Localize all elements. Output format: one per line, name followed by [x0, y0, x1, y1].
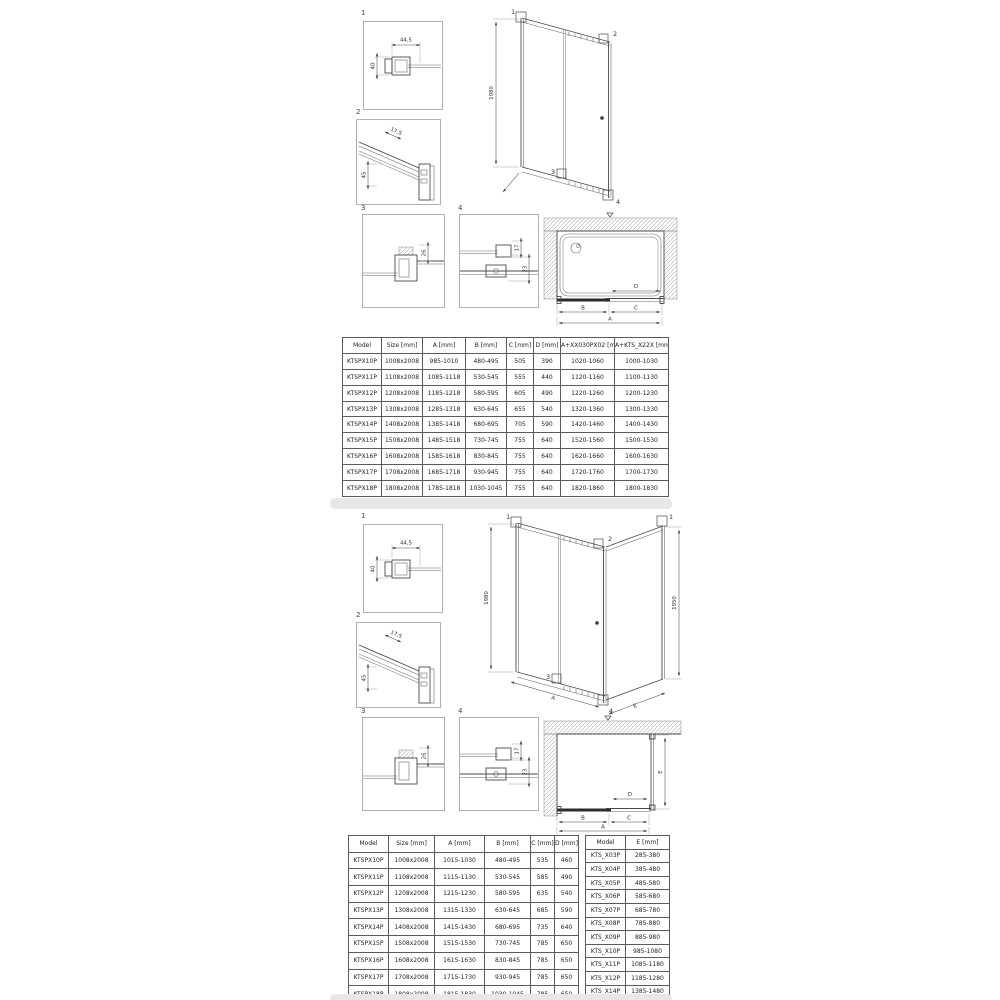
- column-header: D [mm]: [534, 338, 561, 354]
- table-cell: 1215-1230: [435, 886, 485, 903]
- callout-2: 2: [608, 535, 612, 543]
- table-cell: 705: [507, 417, 534, 433]
- table-cell: 1600-1630: [615, 449, 669, 465]
- table-cell: 730-745: [485, 936, 531, 953]
- table-row: KTSPX14P1408x20081385-1418680-6957055901…: [343, 417, 669, 433]
- column-header: C [mm]: [531, 836, 555, 853]
- table-cell: 1185-1218: [423, 385, 466, 401]
- table-cell: 640: [534, 481, 561, 497]
- table-cell: 1100-1130: [615, 369, 669, 385]
- table-cell: 535: [531, 852, 555, 869]
- dimension-C: C: [611, 304, 662, 315]
- table-cell: 985-1010: [423, 353, 466, 369]
- dimension-45: 45: [362, 664, 378, 692]
- column-header: A [mm]: [423, 338, 466, 354]
- table-cell: 1008x2008: [382, 353, 423, 369]
- svg-text:23: 23: [523, 769, 529, 776]
- table-cell: 655: [507, 401, 534, 417]
- rail-teeth: [569, 32, 599, 193]
- dimension-A: A: [511, 682, 599, 707]
- table-cell: 640: [534, 433, 561, 449]
- dimension-D: D: [613, 792, 647, 799]
- callout-4: 4: [616, 198, 620, 206]
- table-cell: 985-1080: [626, 944, 670, 958]
- dimension-45: 45: [362, 161, 378, 189]
- table-cell: 605: [507, 385, 534, 401]
- detail-4-number: 4: [458, 205, 462, 212]
- table-cell: KTS_X10P: [586, 944, 626, 958]
- table-cell: 1020-1060: [561, 353, 615, 369]
- detail-3-number: 3: [361, 205, 365, 212]
- table-cell: KTSPX15P: [349, 936, 389, 953]
- dimension-17: 17: [512, 741, 524, 761]
- table-cell: 1015-1030: [435, 852, 485, 869]
- table-cell: 1585-1618: [423, 449, 466, 465]
- door-with-panel-spec-table: ModelSize [mm]A [mm]B [mm]C [mm]D [mm]KT…: [348, 835, 579, 1000]
- detail-2-number: 2: [356, 109, 360, 116]
- callout-1: 1: [511, 8, 515, 16]
- dimension-23: 23: [508, 757, 532, 787]
- table-header-row: ModelSize [mm]A [mm]B [mm]C [mm]D [mm]A+…: [343, 338, 669, 354]
- table-row: KTSPX17P1708x20081685-1718930-9457556401…: [343, 465, 669, 481]
- table-cell: 640: [534, 449, 561, 465]
- dimension-1980: 1980: [484, 524, 514, 672]
- table-cell: 885-980: [626, 931, 670, 945]
- detail-1-wall-profile: 44,5 40: [363, 21, 443, 110]
- table-cell: 1520-1560: [561, 433, 615, 449]
- table-cell: 930-945: [466, 465, 507, 481]
- table-cell: 590: [534, 417, 561, 433]
- dimension-D: D: [612, 284, 660, 291]
- column-header: C [mm]: [507, 338, 534, 354]
- table-cell: KTSPX13P: [343, 401, 382, 417]
- table-cell: 1108x2008: [389, 869, 435, 886]
- svg-text:B: B: [581, 306, 585, 312]
- section-cut-marker: [607, 213, 613, 217]
- dimension-B: B: [557, 304, 609, 315]
- table-cell: 1030-1045: [466, 481, 507, 497]
- table-cell: 830-845: [485, 952, 531, 969]
- table-cell: 1315-1330: [435, 902, 485, 919]
- table-cell: 460: [555, 852, 579, 869]
- column-header: D [mm]: [555, 836, 579, 853]
- table-cell: 590: [555, 902, 579, 919]
- detail-4-guide-b: 17 23: [459, 717, 539, 811]
- table-cell: 530-545: [466, 369, 507, 385]
- table-row: KTSPX11P1108x20081085-1118530-5455554401…: [343, 369, 669, 385]
- table-cell: 555: [507, 369, 534, 385]
- side-panel-perspective: [606, 526, 665, 700]
- table-cell: 480-495: [485, 852, 531, 869]
- column-header: Model: [343, 338, 382, 354]
- table-cell: 1200-1230: [615, 385, 669, 401]
- detail-3-bottom-rail-b: 26: [362, 717, 445, 811]
- table-cell: 680-695: [485, 919, 531, 936]
- table-cell: KTSPX10P: [343, 353, 382, 369]
- table-cell: 1508x2008: [382, 433, 423, 449]
- table-row: KTSPX12P1208x20081215-1230580-595635540: [349, 886, 579, 903]
- svg-text:23: 23: [523, 266, 529, 273]
- table-cell: 755: [507, 449, 534, 465]
- table-cell: 785: [531, 952, 555, 969]
- table-cell: 1708x2008: [382, 465, 423, 481]
- table-cell: 1700-1730: [615, 465, 669, 481]
- svg-text:D: D: [628, 792, 632, 798]
- table-row: KTSPX10P1008x2008985-1010480-49550539010…: [343, 353, 669, 369]
- table-cell: 1320-1360: [561, 401, 615, 417]
- table-row: KTSPX15P1508x20081485-1518730-7457556401…: [343, 433, 669, 449]
- table-cell: 1420-1460: [561, 417, 615, 433]
- plan-view-recess: D B C A: [543, 212, 678, 330]
- table-cell: 1515-1530: [435, 936, 485, 953]
- opening-direction-arrow: [503, 173, 519, 192]
- table-cell: 490: [534, 385, 561, 401]
- walls: [544, 721, 681, 816]
- walls: [544, 218, 677, 299]
- table-cell: KTS_X08P: [586, 917, 626, 931]
- table-cell: 735: [531, 919, 555, 936]
- svg-text:40: 40: [371, 565, 377, 572]
- table-cell: 755: [507, 481, 534, 497]
- door-handle: [595, 621, 599, 625]
- svg-text:1950: 1950: [672, 596, 678, 610]
- table-cell: 440: [534, 369, 561, 385]
- table-cell: 540: [555, 886, 579, 903]
- dimension-A: A: [557, 825, 649, 835]
- table-cell: 490: [555, 869, 579, 886]
- table-cell: 1808x2008: [382, 481, 423, 497]
- table-cell: 730-745: [466, 433, 507, 449]
- callout-3: 3: [551, 168, 555, 176]
- detail-2-number-b: 2: [356, 612, 360, 619]
- table-cell: 1485-1518: [423, 433, 466, 449]
- table-cell: 1085-1180: [626, 958, 670, 972]
- table-row: KTSPX16P1608x20081585-1618830-8457556401…: [343, 449, 669, 465]
- svg-text:E: E: [633, 703, 639, 710]
- table-cell: 285-380: [626, 849, 670, 863]
- table-row: KTSPX16P1608x20081615-1630830-845785650: [349, 952, 579, 969]
- column-header: B [mm]: [466, 338, 507, 354]
- table-cell: 1715-1730: [435, 969, 485, 986]
- table-row: KTS_X03P285-380: [586, 849, 670, 863]
- dimension-40: 40: [371, 53, 391, 79]
- table-cell: 1085-1118: [423, 369, 466, 385]
- table-row: KTS_X12P1185-1280: [586, 971, 670, 985]
- table-cell: KTSPX16P: [343, 449, 382, 465]
- svg-text:1980: 1980: [489, 86, 495, 100]
- table-cell: 1408x2008: [389, 919, 435, 936]
- dimension-E: E: [656, 735, 669, 809]
- table-row: KTSPX11P1108x20081115-1130530-545585490: [349, 869, 579, 886]
- table-cell: KTSPX12P: [343, 385, 382, 401]
- table-cell: 650: [555, 936, 579, 953]
- dimension-17-5: 17,5: [385, 630, 403, 642]
- table-cell: 1308x2008: [382, 401, 423, 417]
- table-cell: 630-645: [466, 401, 507, 417]
- dimension-23: 23: [508, 254, 532, 284]
- callout-1b: 1: [669, 513, 673, 521]
- callout-2: 2: [613, 30, 617, 38]
- svg-text:45: 45: [362, 675, 368, 682]
- table-row: KTSPX18P1808x20081785-18181030-104575564…: [343, 481, 669, 497]
- door-plan-line: [557, 807, 651, 814]
- table-cell: KTSPX12P: [349, 886, 389, 903]
- table-cell: 1108x2008: [382, 369, 423, 385]
- table-cell: 1720-1760: [561, 465, 615, 481]
- table-cell: 685-780: [626, 903, 670, 917]
- table-row: KTSPX14P1408x20081415-1430680-695735640: [349, 919, 579, 936]
- table-cell: 1000-1030: [615, 353, 669, 369]
- table-row: KTS_X05P485-580: [586, 876, 670, 890]
- table-cell: 785: [531, 969, 555, 986]
- dimension-17: 17: [512, 238, 524, 258]
- table-cell: 1208x2008: [382, 385, 423, 401]
- detail-markers: [516, 12, 613, 200]
- table-cell: 1408x2008: [382, 417, 423, 433]
- table-cell: 385-480: [626, 863, 670, 877]
- table-cell: KTSPX18P: [343, 481, 382, 497]
- dimension-44-5: 44,5: [392, 541, 420, 567]
- table-cell: KTS_X11P: [586, 958, 626, 972]
- table-cell: 650: [555, 952, 579, 969]
- door-elevation-drawing: 1 2 3 4 1980: [483, 6, 648, 212]
- table-cell: KTS_X07P: [586, 903, 626, 917]
- detail-3-bottom-rail: 26: [362, 214, 445, 308]
- table-cell: 1208x2008: [389, 886, 435, 903]
- table-cell: 1220-1260: [561, 385, 615, 401]
- dimension-40: 40: [371, 556, 391, 582]
- svg-text:B: B: [581, 816, 585, 822]
- top-rail-drawing: [359, 645, 434, 703]
- table-cell: 580-595: [485, 886, 531, 903]
- table-cell: KTSPX10P: [349, 852, 389, 869]
- table-row: KTSPX13P1308x20081285-1318630-6456555401…: [343, 401, 669, 417]
- dimension-B: B: [557, 814, 609, 825]
- svg-text:D: D: [634, 284, 638, 290]
- table-cell: 585-680: [626, 890, 670, 904]
- table-cell: KTS_X12P: [586, 971, 626, 985]
- svg-text:44,5: 44,5: [400, 541, 412, 547]
- table-cell: 930-945: [485, 969, 531, 986]
- table-row: KTS_X06P585-680: [586, 890, 670, 904]
- column-header: B [mm]: [485, 836, 531, 853]
- table-cell: KTSPX11P: [349, 869, 389, 886]
- table-cell: KTSPX14P: [343, 417, 382, 433]
- svg-text:17,5: 17,5: [389, 630, 402, 640]
- table-row: KTSPX17P1708x20081715-1730930-945785650: [349, 969, 579, 986]
- column-header: A+KTS_X22X [mm]: [615, 338, 669, 354]
- table-cell: 485-580: [626, 876, 670, 890]
- section-cut-marker: [605, 716, 611, 720]
- table-cell: KTSPX13P: [349, 902, 389, 919]
- svg-text:17: 17: [515, 748, 521, 755]
- detail-4-number-b: 4: [458, 708, 462, 715]
- table-cell: 785: [531, 936, 555, 953]
- dimension-1980: 1980: [489, 19, 519, 167]
- detail-3-number-b: 3: [361, 708, 365, 715]
- column-header: A [mm]: [435, 836, 485, 853]
- table-header-row: ModelSize [mm]A [mm]B [mm]C [mm]D [mm]: [349, 836, 579, 853]
- detail-2-top-rail-b: 17,5 45: [356, 622, 441, 708]
- table-cell: 830-845: [466, 449, 507, 465]
- svg-text:17,5: 17,5: [389, 127, 402, 137]
- table-cell: KTSPX14P: [349, 919, 389, 936]
- door-with-panel-elevation-drawing: 1 1 2 3 4 1980 1950 A E: [478, 509, 693, 731]
- wall-profile-drawing: [385, 560, 441, 578]
- rail-teeth: [564, 537, 594, 698]
- table-cell: 1685-1718: [423, 465, 466, 481]
- detail-4-guide: 17 23: [459, 214, 539, 308]
- table-row: KTS_X08P785-880: [586, 917, 670, 931]
- svg-text:A: A: [608, 317, 612, 323]
- table-cell: 530-545: [485, 869, 531, 886]
- table-cell: KTS_X04P: [586, 863, 626, 877]
- table-row: KTSPX13P1308x20081315-1330630-645685590: [349, 902, 579, 919]
- svg-text:26: 26: [422, 249, 428, 256]
- table-cell: 1800-1830: [615, 481, 669, 497]
- table-cell: 755: [507, 465, 534, 481]
- svg-text:44,5: 44,5: [400, 38, 412, 44]
- table-cell: 640: [534, 465, 561, 481]
- svg-text:A: A: [550, 695, 555, 702]
- table-cell: 650: [555, 969, 579, 986]
- table-cell: KTS_X09P: [586, 931, 626, 945]
- door-plan-line: [557, 297, 664, 304]
- table-cell: 1608x2008: [389, 952, 435, 969]
- table-row: KTSPX15P1508x20081515-1530730-745785650: [349, 936, 579, 953]
- table-cell: KTSPX11P: [343, 369, 382, 385]
- table-cell: 505: [507, 353, 534, 369]
- table-cell: 755: [507, 433, 534, 449]
- dimension-17-5: 17,5: [385, 127, 403, 139]
- table-cell: 1620-1660: [561, 449, 615, 465]
- svg-text:1980: 1980: [484, 591, 490, 605]
- table-cell: 1608x2008: [382, 449, 423, 465]
- table-cell: KTSPX16P: [349, 952, 389, 969]
- table-cell: 480-495: [466, 353, 507, 369]
- table-row: KTS_X09P885-980: [586, 931, 670, 945]
- detail-1-wall-profile-b: 44,5 40: [363, 524, 443, 613]
- svg-text:C: C: [627, 816, 631, 822]
- svg-text:17: 17: [515, 245, 521, 252]
- column-header: Size [mm]: [382, 338, 423, 354]
- table-cell: 1285-1318: [423, 401, 466, 417]
- svg-text:45: 45: [362, 172, 368, 179]
- detail-1-number-b: 1: [361, 513, 365, 520]
- table-cell: 1500-1530: [615, 433, 669, 449]
- table-cell: 1615-1630: [435, 952, 485, 969]
- table-cell: 580-595: [466, 385, 507, 401]
- table-cell: 635: [531, 886, 555, 903]
- wall-profile-drawing: [385, 57, 441, 75]
- detail-1-number: 1: [361, 10, 365, 17]
- datasheet-page: 1 44,5 40 2: [0, 0, 1000, 1000]
- dimension-A: A: [557, 317, 662, 327]
- table-cell: 1415-1430: [435, 919, 485, 936]
- table-cell: 585: [531, 869, 555, 886]
- table-cell: 1120-1160: [561, 369, 615, 385]
- table-cell: 1008x2008: [389, 852, 435, 869]
- table-row: KTSPX12P1208x20081185-1218580-5956054901…: [343, 385, 669, 401]
- svg-text:A: A: [601, 825, 605, 831]
- section-separator: [330, 498, 672, 509]
- table-cell: 390: [534, 353, 561, 369]
- door-spec-table: ModelSize [mm]A [mm]B [mm]C [mm]D [mm]A+…: [342, 337, 669, 497]
- table-cell: 1185-1280: [626, 971, 670, 985]
- table-cell: 1508x2008: [389, 936, 435, 953]
- table-cell: KTSPX15P: [343, 433, 382, 449]
- bottom-rail-drawing: [363, 247, 444, 281]
- table-cell: 1400-1430: [615, 417, 669, 433]
- table-row: KTS_X04P385-480: [586, 863, 670, 877]
- table-cell: 1115-1130: [435, 869, 485, 886]
- table-cell: KTS_X05P: [586, 876, 626, 890]
- table-cell: 680-695: [466, 417, 507, 433]
- table-cell: 1708x2008: [389, 969, 435, 986]
- side-panel-plan-line: [650, 734, 656, 810]
- top-rail-drawing: [359, 142, 434, 200]
- table-header-row: ModelE [mm]: [586, 836, 670, 850]
- table-row: KTS_X11P1085-1180: [586, 958, 670, 972]
- side-panel-spec-table: ModelE [mm]KTS_X03P285-380KTS_X04P385-48…: [585, 835, 670, 999]
- column-header: A+XX030PX02 [mm]: [561, 338, 615, 354]
- svg-text:40: 40: [371, 62, 377, 69]
- bottom-rail-drawing: [363, 750, 444, 784]
- table-row: KTS_X10P985-1080: [586, 944, 670, 958]
- table-cell: 685: [531, 902, 555, 919]
- column-header: Model: [349, 836, 389, 853]
- table-cell: KTSPX17P: [349, 969, 389, 986]
- column-header: Size [mm]: [389, 836, 435, 853]
- table-row: KTS_X07P685-780: [586, 903, 670, 917]
- door-handle: [600, 116, 604, 120]
- svg-text:E: E: [658, 770, 664, 774]
- table-row: KTSPX10P1008x20081015-1030480-495535460: [349, 852, 579, 869]
- table-cell: 640: [555, 919, 579, 936]
- table-cell: 785-880: [626, 917, 670, 931]
- plan-view-corner: E D B C A: [543, 713, 683, 835]
- dimension-1950: 1950: [666, 527, 682, 679]
- table-cell: 630-645: [485, 902, 531, 919]
- table-cell: 1785-1818: [423, 481, 466, 497]
- dimension-C: C: [611, 814, 649, 825]
- callout-1: 1: [506, 513, 510, 521]
- svg-text:26: 26: [422, 752, 428, 759]
- table-cell: 1300-1330: [615, 401, 669, 417]
- column-header: Model: [586, 836, 626, 850]
- table-cell: KTS_X03P: [586, 849, 626, 863]
- column-header: E [mm]: [626, 836, 670, 850]
- detail-2-top-rail: 17,5 45: [356, 119, 441, 205]
- dimension-44-5: 44,5: [392, 38, 420, 64]
- shower-tray: [560, 234, 661, 296]
- svg-text:C: C: [634, 306, 638, 312]
- table-cell: 1308x2008: [389, 902, 435, 919]
- table-cell: 1385-1418: [423, 417, 466, 433]
- page-bottom-band: [330, 994, 672, 1000]
- callout-3: 3: [546, 673, 550, 681]
- table-cell: 1820-1860: [561, 481, 615, 497]
- table-cell: KTS_X06P: [586, 890, 626, 904]
- table-cell: 540: [534, 401, 561, 417]
- table-cell: KTSPX17P: [343, 465, 382, 481]
